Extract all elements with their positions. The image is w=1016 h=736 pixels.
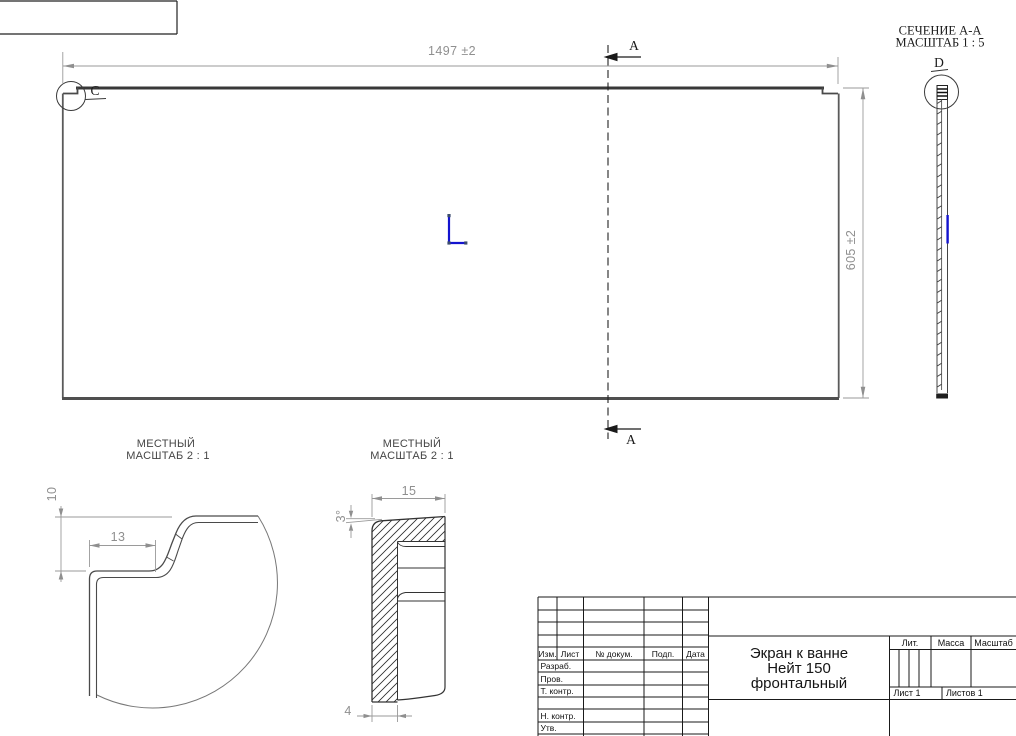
section-cut-line[interactable] <box>604 45 642 439</box>
detail-d-dim-15[interactable]: 15 <box>402 484 417 498</box>
detail-d-label[interactable]: D <box>934 55 944 71</box>
part-name-line1: Экран к ванне <box>750 646 848 661</box>
part-name-line2: Нейт 150 <box>767 661 831 676</box>
tb-row-n-kontr: Н. контр. <box>541 711 576 721</box>
section-arrow-label-bottom[interactable]: A <box>626 432 636 448</box>
part-name-cell: Экран к ванне Нейт 150 фронтальный <box>710 637 888 699</box>
tb-massa-header: Масса <box>938 638 965 648</box>
section-view-geometry[interactable] <box>925 70 959 399</box>
detail-c-label[interactable]: C <box>90 83 99 99</box>
tb-row-razrab: Разраб. <box>541 661 572 671</box>
tb-row-utv: Утв. <box>541 723 557 733</box>
section-arrow-label-top[interactable]: A <box>629 38 639 54</box>
tb-masshtab-header: Масштаб <box>974 638 1013 648</box>
top-left-partial-frame <box>0 1 177 34</box>
detail-d-geometry[interactable] <box>346 494 445 722</box>
drawing-sheet: { "drawing": { "main_view": { "dim_width… <box>0 0 1016 736</box>
drawing-linework <box>0 0 1016 736</box>
tb-row-t-kontr: Т. контр. <box>541 686 574 696</box>
detail-d-title[interactable]: МЕСТНЫЙ <box>383 438 442 450</box>
detail-c-geometry[interactable] <box>55 506 277 708</box>
selected-edge-main[interactable] <box>447 214 467 245</box>
detail-c-dim-13[interactable]: 13 <box>111 530 126 544</box>
main-width-dimension[interactable]: 1497 ±2 <box>428 44 476 58</box>
detail-c-scale[interactable]: МАСШТАБ 2 : 1 <box>126 450 210 462</box>
detail-c-dim-10[interactable]: 10 <box>45 487 59 502</box>
tb-col-dokum: № докум. <box>595 649 632 659</box>
tb-col-podp: Подп. <box>652 649 675 659</box>
tb-listov-num: Листов 1 <box>946 688 983 698</box>
tb-row-prov: Пров. <box>541 674 563 684</box>
main-height-dimension[interactable]: 605 ±2 <box>844 230 858 271</box>
tb-lit-header: Лит. <box>902 638 919 648</box>
tb-col-list: Лист <box>561 649 579 659</box>
part-name-line3: фронтальный <box>751 676 847 691</box>
tb-list-num: Лист 1 <box>894 688 921 698</box>
detail-d-dim-angle[interactable]: 3° <box>334 510 348 523</box>
detail-d-dim-4[interactable]: 4 <box>344 704 351 718</box>
detail-c-title[interactable]: МЕСТНЫЙ <box>137 438 196 450</box>
section-view-scale[interactable]: МАСШТАБ 1 : 5 <box>895 35 984 50</box>
tb-col-data: Дата <box>686 649 705 659</box>
tb-col-izm: Изм. <box>538 649 556 659</box>
detail-d-scale[interactable]: МАСШТАБ 2 : 1 <box>370 450 454 462</box>
